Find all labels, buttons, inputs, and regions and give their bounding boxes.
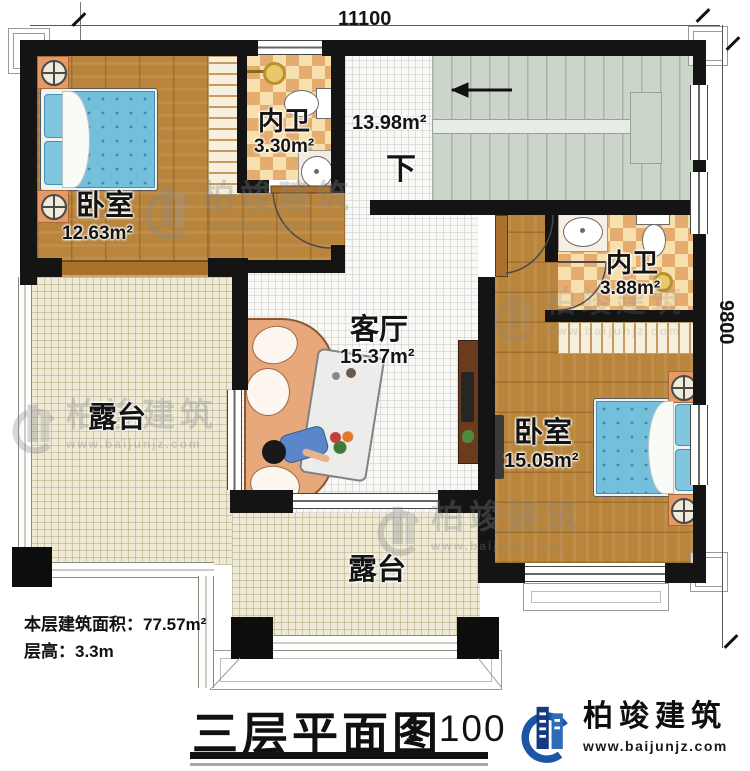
brand-url: www.baijunjz.com (583, 738, 728, 754)
window (690, 405, 708, 485)
tv-living (461, 372, 474, 422)
lamp-icon (41, 60, 67, 86)
wall (232, 273, 248, 390)
plant-icon (462, 430, 474, 443)
room-label: 卧室 (76, 192, 134, 221)
entry-steps-inner (220, 658, 492, 682)
title-underline (190, 752, 488, 759)
table-flowers (324, 426, 358, 456)
room-label: 卧室 (514, 419, 572, 448)
hall-floor (345, 56, 432, 215)
wall (20, 40, 258, 56)
terrace-door (62, 260, 208, 277)
table-dot (346, 368, 356, 378)
window (690, 85, 708, 160)
room-area: 12.63m² (62, 224, 133, 243)
railing-post (231, 617, 273, 659)
stair-handrail (432, 119, 632, 134)
railing (18, 277, 32, 565)
window-sill-inner (531, 591, 661, 603)
dim-right-label: 9800 (714, 300, 737, 345)
wall (665, 563, 706, 583)
brand-logo-icon (515, 702, 575, 766)
nightstand (37, 56, 69, 89)
wardrobe1-closet (208, 56, 240, 195)
extension-line (80, 2, 81, 40)
wall (545, 310, 693, 322)
wall (237, 53, 247, 193)
wall (20, 258, 62, 277)
dim-tick (724, 634, 739, 649)
person-sitting (262, 440, 286, 464)
room-label: 露台 (348, 556, 406, 585)
sink-drain (580, 228, 585, 233)
railing-post (457, 617, 499, 659)
wardrobe2-closet (558, 322, 695, 354)
wall (478, 277, 495, 563)
room-label: 内卫 (606, 250, 658, 276)
floor-height-note: 层高：3.3m (24, 637, 114, 662)
brand-name: 柏竣建筑 (583, 702, 728, 732)
wall (230, 490, 293, 513)
wall (438, 490, 480, 513)
room-label: 露台 (88, 404, 146, 433)
floor-area-note: 本层建筑面积：77.57m² (24, 610, 206, 635)
window (525, 566, 665, 582)
room-area: 3.30m² (254, 137, 314, 156)
wall (478, 563, 525, 583)
sliding-door (293, 493, 438, 509)
window (227, 390, 242, 490)
towel-ring-icon (263, 62, 286, 85)
floor-plan-canvas: 11100 9800 柏竣建筑 www.baijunjz.com 柏竣建筑 ww… (0, 0, 750, 771)
wall (545, 215, 558, 262)
title-underline-thin (190, 763, 488, 766)
room-label: 内卫 (258, 108, 310, 134)
railing (268, 635, 460, 651)
wall (370, 200, 706, 215)
brand-logo: 柏竣建筑 www.baijunjz.com (515, 702, 728, 766)
blanket (648, 401, 674, 494)
wall (20, 40, 37, 285)
door-leaf (495, 215, 508, 277)
railing-post (12, 547, 52, 587)
wall (237, 180, 269, 193)
dim-top-label: 11100 (338, 8, 391, 31)
nightstand (37, 190, 69, 223)
stair-area-label: 13.98m² (352, 113, 427, 133)
lamp-icon (41, 194, 67, 220)
window (258, 40, 322, 55)
stair-down-label: 下 (386, 155, 416, 185)
sofa-cushion (246, 368, 290, 416)
wall (331, 53, 345, 185)
wall (322, 40, 706, 56)
room-area: 15.05m² (504, 451, 579, 471)
dim-tick (696, 8, 711, 23)
railing (24, 562, 214, 578)
bedroom1-corridor-floor (208, 193, 345, 260)
window (690, 172, 708, 234)
stair-landing-outline (630, 92, 662, 164)
room-label: 客厅 (350, 316, 408, 345)
wall (232, 260, 345, 273)
sink-drain (314, 169, 319, 174)
room-area: 3.88m² (600, 279, 660, 298)
plan-scale: 1:100 (404, 708, 507, 750)
room-area: 15.37m² (340, 347, 415, 367)
